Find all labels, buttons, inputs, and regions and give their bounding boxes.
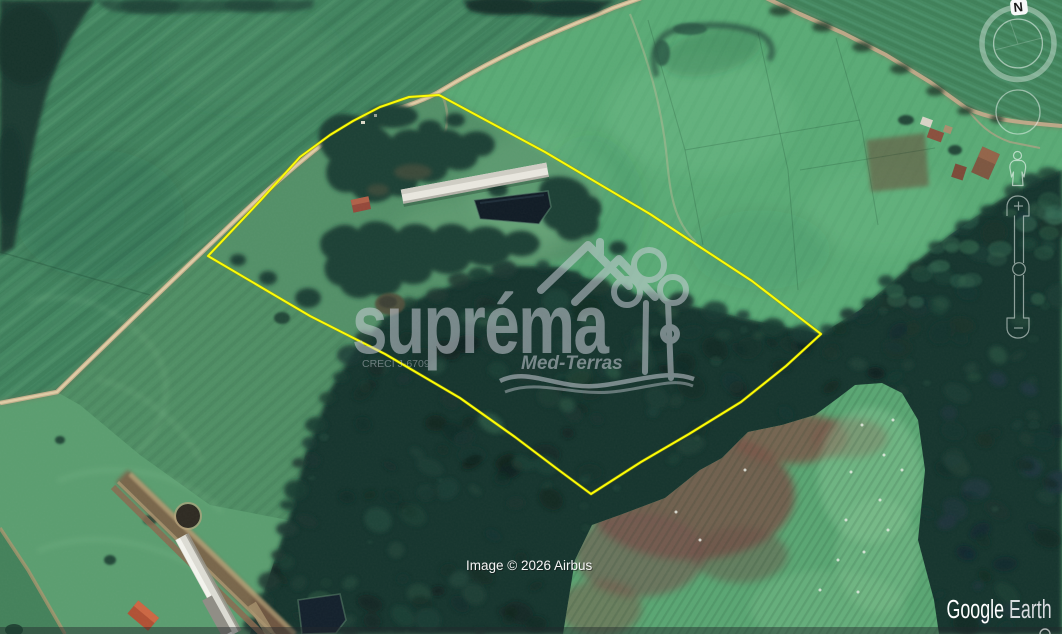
svg-text:Med-Terras: Med-Terras <box>521 353 623 374</box>
svg-text:N: N <box>1013 0 1024 15</box>
svg-text:Image © 2026 Airbus: Image © 2026 Airbus <box>466 558 593 573</box>
svg-text:Google Earth: Google Earth <box>947 595 1052 624</box>
svg-text:CRECI J-6709: CRECI J-6709 <box>362 358 430 370</box>
